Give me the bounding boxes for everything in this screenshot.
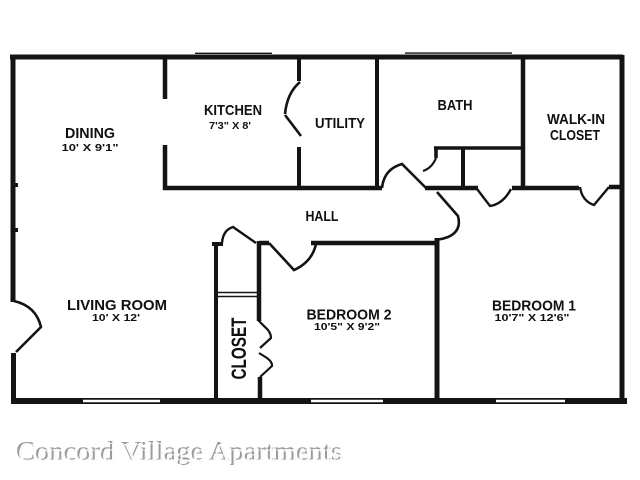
- svg-text:10' X 9'1": 10' X 9'1": [62, 142, 119, 154]
- svg-text:KITCHEN: KITCHEN: [204, 102, 262, 119]
- svg-text:10' X 12': 10' X 12': [92, 312, 140, 324]
- svg-text:UTILITY: UTILITY: [315, 115, 365, 132]
- svg-text:WALK-IN: WALK-IN: [547, 111, 605, 128]
- svg-text:10'7" X 12'6": 10'7" X 12'6": [495, 312, 570, 324]
- svg-text:7'3" X 8': 7'3" X 8': [209, 120, 251, 132]
- svg-text:HALL: HALL: [306, 208, 339, 225]
- svg-text:CLOSET: CLOSET: [228, 317, 251, 379]
- svg-text:BATH: BATH: [438, 97, 473, 114]
- svg-text:Concord Village Apartments: Concord Village Apartments: [18, 437, 344, 467]
- svg-text:10'5" X 9'2": 10'5" X 9'2": [314, 321, 380, 333]
- svg-text:CLOSET: CLOSET: [550, 127, 600, 144]
- svg-text:DINING: DINING: [65, 125, 115, 142]
